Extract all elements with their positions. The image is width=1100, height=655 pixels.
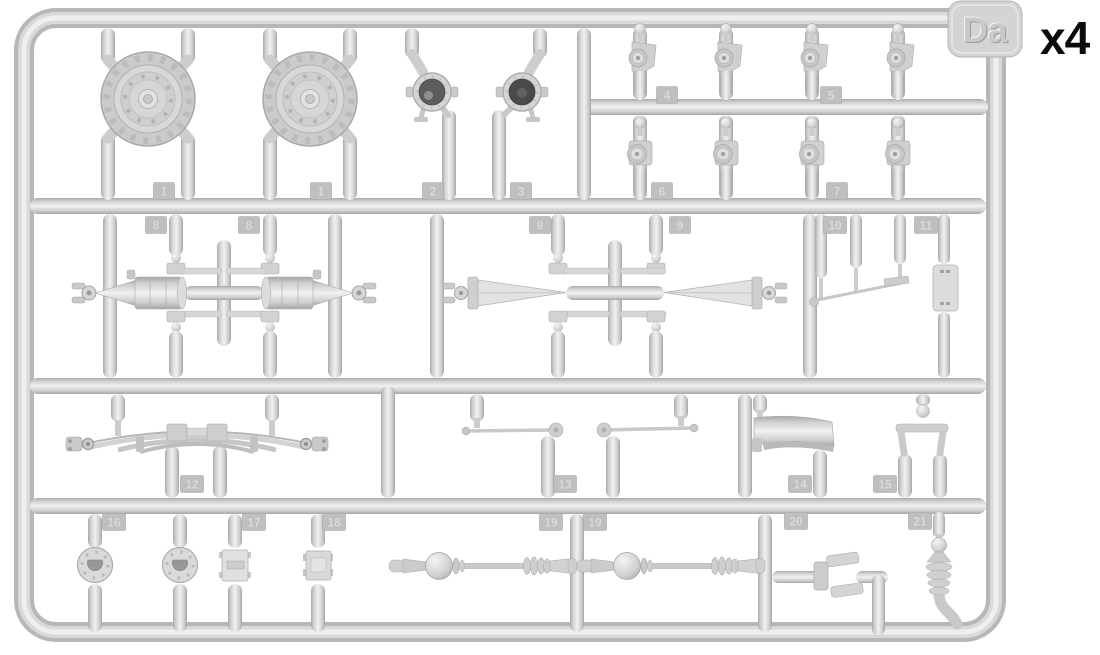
part-tag: 17 xyxy=(243,514,266,531)
svg-text:6: 6 xyxy=(659,185,666,199)
sprue-letter: Da xyxy=(963,11,1008,50)
fender-bracket-part xyxy=(752,416,834,452)
svg-text:11: 11 xyxy=(920,219,933,233)
part-tag: 2 xyxy=(423,183,444,200)
part-tag: 10 xyxy=(824,217,847,234)
part-tag: 15 xyxy=(874,476,897,493)
part-tag: 8 xyxy=(146,217,167,234)
part-tag: 19 xyxy=(584,514,607,531)
part-tag: 4 xyxy=(657,87,678,104)
sprue-letter-tab: Da xyxy=(948,1,1022,57)
roller-part xyxy=(628,118,653,200)
roller-part xyxy=(714,118,739,200)
part-tag: 16 xyxy=(103,514,126,531)
part-tag: 9 xyxy=(670,217,691,234)
plate-part xyxy=(933,265,958,311)
svg-text:12: 12 xyxy=(185,478,199,492)
svg-text:18: 18 xyxy=(327,516,341,530)
svg-text:20: 20 xyxy=(789,515,803,529)
part-tag: 13 xyxy=(554,476,577,493)
svg-text:8: 8 xyxy=(153,219,160,233)
fork-joint-part xyxy=(814,552,864,598)
part-tag: 9 xyxy=(530,217,551,234)
part-tag: 6 xyxy=(652,183,673,200)
part-tag: 5 xyxy=(821,87,842,104)
svg-text:8: 8 xyxy=(246,219,253,233)
hub-flange-part xyxy=(78,548,113,583)
road-wheel-part xyxy=(263,52,357,146)
slotted-plate-part xyxy=(219,550,251,581)
svg-text:17: 17 xyxy=(247,516,261,530)
part-tag: 3 xyxy=(511,183,532,200)
part-tag: 11 xyxy=(915,217,938,234)
svg-text:3: 3 xyxy=(518,185,525,199)
part-tag: 19 xyxy=(540,514,563,531)
part-tag: 21 xyxy=(909,513,932,530)
part-tag: 8 xyxy=(239,217,260,234)
part-tag: 14 xyxy=(789,476,812,493)
boot-spring-part xyxy=(926,534,952,595)
part-tag: 1 xyxy=(311,183,332,200)
roller-part xyxy=(886,118,911,200)
part-tag: 18 xyxy=(323,514,346,531)
driveshaft-part xyxy=(577,553,765,580)
part-tag: 7 xyxy=(827,183,848,200)
svg-text:2: 2 xyxy=(430,185,437,199)
driveshaft-part xyxy=(389,553,577,580)
svg-text:10: 10 xyxy=(828,219,842,233)
svg-text:9: 9 xyxy=(677,219,684,233)
svg-text:4: 4 xyxy=(664,89,671,103)
axle-housing-half-part xyxy=(72,270,187,309)
svg-text:13: 13 xyxy=(558,478,572,492)
part-tag: 12 xyxy=(181,476,204,493)
svg-text:5: 5 xyxy=(828,89,835,103)
roller-part xyxy=(800,118,825,200)
front-axle-half-part xyxy=(664,277,787,309)
hub-flange-part xyxy=(163,548,198,583)
svg-text:19: 19 xyxy=(588,516,602,530)
svg-text:15: 15 xyxy=(878,478,892,492)
bracket-part xyxy=(303,551,333,580)
svg-text:9: 9 xyxy=(537,219,544,233)
road-wheel-part xyxy=(101,52,195,146)
svg-text:16: 16 xyxy=(107,516,121,530)
front-axle-half-part xyxy=(443,277,566,309)
part-tag: 1 xyxy=(154,183,175,200)
leaf-spring-part xyxy=(66,424,328,452)
svg-text:1: 1 xyxy=(318,185,325,199)
quantity-label: x4 xyxy=(1040,12,1091,64)
svg-text:19: 19 xyxy=(544,516,558,530)
svg-text:1: 1 xyxy=(161,185,168,199)
svg-text:14: 14 xyxy=(793,478,807,492)
svg-text:21: 21 xyxy=(913,515,927,529)
sprue-diagram: 1 1 2 3 4 5 6 7 8 8 9 9 10 11 12 13 14 1… xyxy=(0,0,1100,655)
gear-lever-part xyxy=(810,276,910,307)
u-bracket-part xyxy=(896,404,948,453)
svg-text:7: 7 xyxy=(834,185,841,199)
part-tag: 20 xyxy=(785,513,808,530)
axle-housing-half-part xyxy=(262,270,377,309)
